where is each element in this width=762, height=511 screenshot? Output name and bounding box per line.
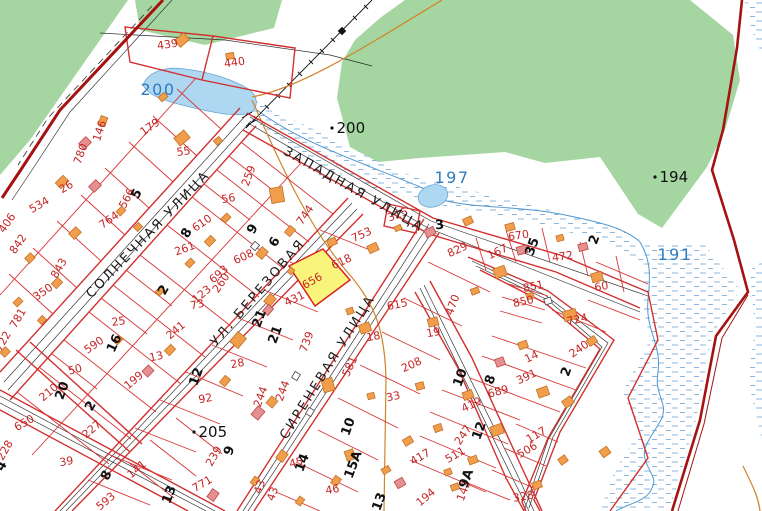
elevation-point-label: 200 [337,119,366,137]
elevation-point-dot [653,175,656,178]
elevation-point-label: 194 [660,168,689,186]
parcel-number-label: 28 [229,356,245,371]
building [556,234,564,242]
elevation-point-dot [192,430,195,433]
building [269,186,284,203]
building [367,392,375,400]
parcel-number-label: 19 [425,325,441,340]
water-elevation-label: 197 [434,168,469,187]
map-viewport[interactable]: 4394401461795578026534566764406842843350… [0,0,762,511]
parcel-number-label: 46 [324,482,340,497]
water-elevation-label: 200 [140,80,175,99]
elevation-point-label: 205 [199,423,228,441]
parcel-number-label: 25 [111,314,127,329]
building [415,382,425,391]
water-elevation-label: 191 [657,245,692,264]
cadastral-map-canvas[interactable]: 4394401461795578026534566764406842843350… [0,0,762,511]
elevation-point-dot [330,126,333,129]
parcel-number-label: 92 [197,391,213,406]
parcel-number-label: 56 [220,191,236,206]
parcel-number-label: 55 [176,144,192,159]
house-number-label: 3 [435,218,445,234]
parcel-number-label: 39 [58,454,74,469]
parcel-number-label: 60 [593,279,609,294]
parcel-number-label: 18 [365,329,381,344]
